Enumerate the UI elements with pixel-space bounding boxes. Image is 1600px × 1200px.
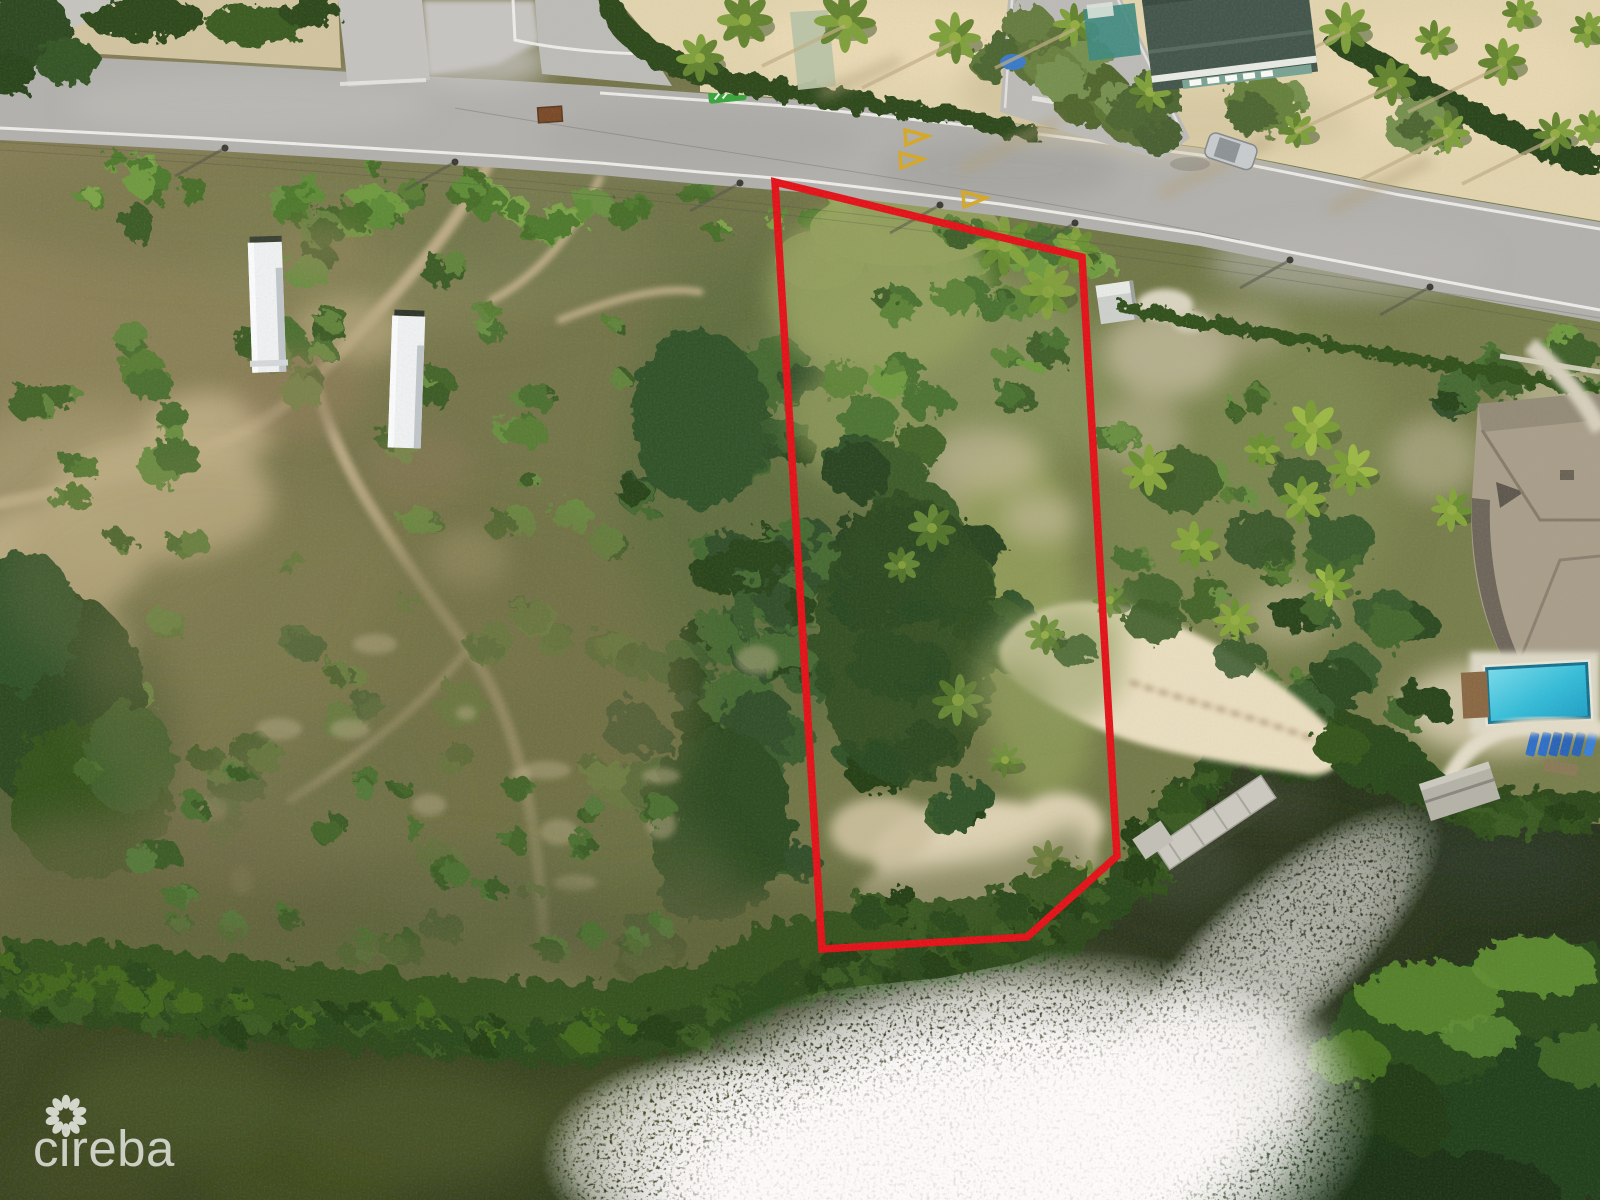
svg-text:cireba: cireba — [33, 1120, 175, 1177]
